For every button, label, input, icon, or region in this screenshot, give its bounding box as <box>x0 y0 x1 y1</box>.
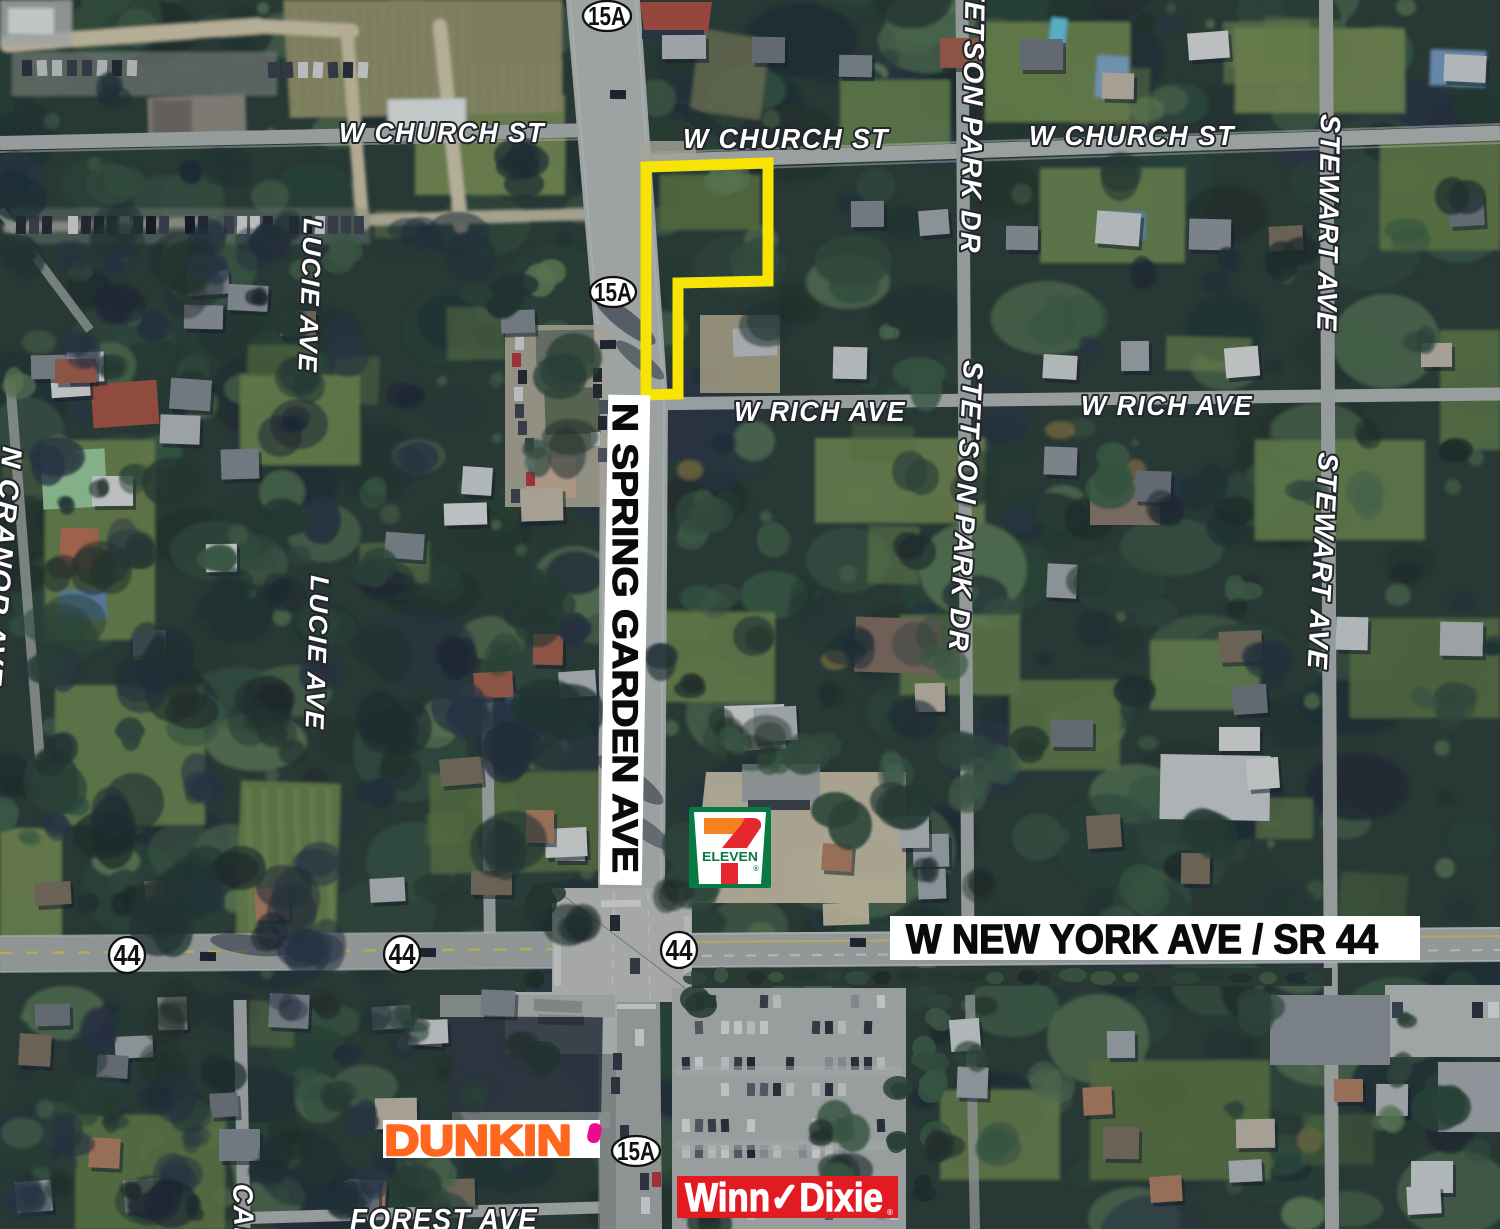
svg-text:44: 44 <box>114 940 141 972</box>
svg-text:N SPRING GARDEN AVE: N SPRING GARDEN AVE <box>605 403 644 873</box>
svg-text:W RICH AVE: W RICH AVE <box>734 396 906 427</box>
svg-text:W CHURCH ST: W CHURCH ST <box>1029 120 1236 151</box>
svg-text:STETSON PARK DR: STETSON PARK DR <box>955 0 991 254</box>
svg-text:Winn✓Dixie: Winn✓Dixie <box>685 1176 883 1220</box>
svg-text:W CHURCH ST: W CHURCH ST <box>683 123 890 154</box>
svg-text:15A: 15A <box>588 1 626 31</box>
svg-text:15A: 15A <box>617 1136 655 1166</box>
svg-text:CANS: CANS <box>227 1183 261 1229</box>
svg-text:W NEW YORK AVE / SR 44: W NEW YORK AVE / SR 44 <box>906 916 1378 962</box>
svg-text:LUCIE AVE: LUCIE AVE <box>300 575 335 731</box>
svg-text:15A: 15A <box>594 277 632 307</box>
svg-text:®: ® <box>887 1208 893 1217</box>
svg-text:W RICH AVE: W RICH AVE <box>1081 390 1253 421</box>
svg-text:FOREST AVE: FOREST AVE <box>350 1202 538 1229</box>
svg-text:LUCIE AVE: LUCIE AVE <box>293 218 328 374</box>
svg-text:DUNKIN: DUNKIN <box>385 1117 572 1165</box>
svg-text:®: ® <box>753 865 759 873</box>
svg-text:STEWART AVE: STEWART AVE <box>1311 114 1346 333</box>
svg-text:W CHURCH ST: W CHURCH ST <box>339 117 546 148</box>
svg-text:44: 44 <box>666 935 693 967</box>
svg-text:ELEVEN: ELEVEN <box>702 850 758 864</box>
svg-text:44: 44 <box>389 939 416 971</box>
